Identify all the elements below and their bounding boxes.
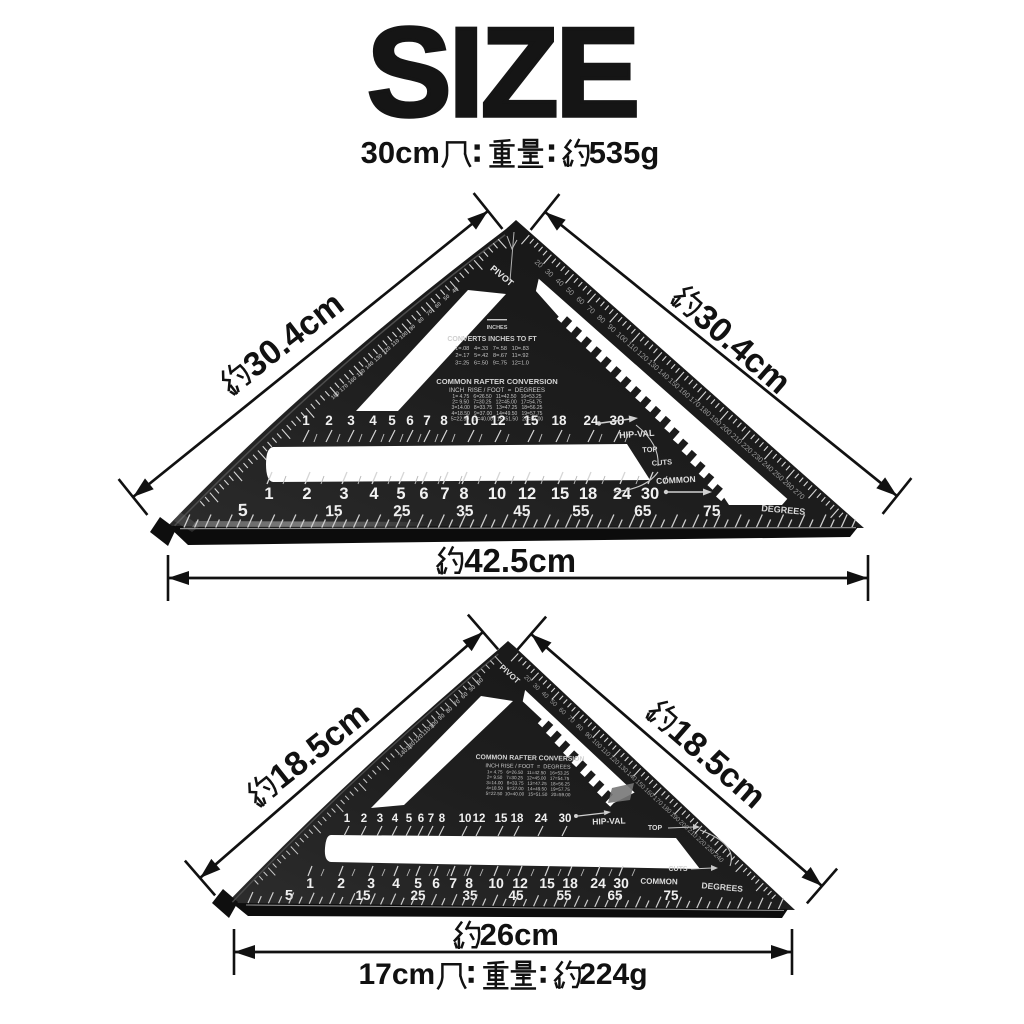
svg-text:2: 2 [302,485,311,503]
svg-text:6: 6 [418,813,424,825]
svg-text:35: 35 [456,503,474,521]
svg-text:12: 12 [490,413,505,428]
svg-text:15: 15 [523,413,539,428]
svg-text:5: 5 [406,813,413,825]
svg-text:3: 3 [339,485,348,503]
svg-text:5: 5 [238,500,249,520]
svg-text:18: 18 [551,413,567,428]
svg-text:224g: 224g [579,958,647,991]
svg-text:26cm: 26cm [480,917,559,952]
svg-text:12: 12 [518,485,536,503]
svg-text:10: 10 [459,813,472,825]
svg-text:4: 4 [369,413,377,428]
svg-text:15: 15 [551,485,569,503]
svg-text:1: 1 [306,875,314,891]
svg-text:10: 10 [488,485,506,503]
svg-text:15: 15 [539,875,555,891]
svg-text:18: 18 [579,485,597,503]
svg-text:8: 8 [440,413,448,428]
svg-text:4: 4 [392,875,400,891]
svg-text:1: 1 [344,813,351,825]
svg-text:17cm: 17cm [359,958,436,991]
svg-text:15: 15 [495,813,508,825]
svg-text:2: 2 [325,413,333,428]
svg-text:55: 55 [572,503,590,521]
svg-text:18: 18 [511,813,524,825]
svg-text:8: 8 [459,485,468,503]
svg-text:2: 2 [337,875,345,891]
svg-text:75: 75 [663,888,679,903]
svg-text:CUTS: CUTS [651,457,672,467]
svg-text:45: 45 [513,503,531,521]
svg-text:INCH RISE / FOOT = DEGREES: INCH RISE / FOOT = DEGREES [449,387,545,394]
svg-text:8: 8 [439,813,446,825]
svg-text:COMMON: COMMON [656,474,696,486]
svg-text:15: 15 [355,888,371,903]
svg-text:2: 2 [361,813,367,825]
svg-text:24: 24 [613,485,632,503]
svg-text:7: 7 [449,875,457,891]
svg-text:30cm: 30cm [361,135,440,170]
svg-text:30: 30 [641,485,659,503]
svg-text:4: 4 [369,485,379,503]
svg-text:24: 24 [590,875,606,891]
svg-text:CONVERTS INCHES TO FT: CONVERTS INCHES TO FT [447,336,537,343]
svg-text:10: 10 [463,413,478,428]
svg-text:1: 1 [264,485,273,503]
svg-text:3=.25 6=.50 9=.75 12=1.0: 3=.25 6=.50 9=.75 12=1.0 [455,360,529,366]
svg-text:30: 30 [559,813,572,825]
svg-text:1=.08 4=.33 7=.58 10=.83: 1=.08 4=.33 7=.58 10=.83 [455,346,529,352]
svg-text:7: 7 [423,413,431,428]
svg-text:42.5cm: 42.5cm [464,542,576,579]
svg-text:7: 7 [428,813,434,825]
svg-text:COMMON RAFTER CONVERSION: COMMON RAFTER CONVERSION [436,377,558,386]
svg-text:6: 6 [432,875,440,891]
svg-text:4: 4 [392,813,399,825]
svg-text:5: 5 [396,485,405,503]
svg-text:6: 6 [406,413,414,428]
svg-text:COMMON: COMMON [640,877,678,887]
svg-text:65: 65 [607,888,623,903]
svg-text:3: 3 [377,813,383,825]
svg-text:3: 3 [347,413,355,428]
svg-text:HIP-VAL: HIP-VAL [592,815,626,826]
svg-text:535g: 535g [589,135,660,170]
svg-text:7: 7 [440,485,449,503]
svg-text:TOP: TOP [648,825,663,832]
svg-text:24: 24 [535,813,548,825]
svg-text:12: 12 [473,813,486,825]
svg-text:INCHES: INCHES [487,325,508,331]
svg-text:65: 65 [634,503,652,521]
svg-text:2=.17 5=.42 8=.67 11=.92: 2=.17 5=.42 8=.67 11=.92 [455,353,528,359]
svg-text:10: 10 [488,875,504,891]
svg-text:25: 25 [393,503,411,521]
svg-text:24: 24 [583,413,599,428]
svg-text:CUTS: CUTS [668,866,687,873]
svg-text:6: 6 [419,485,428,503]
svg-text:1: 1 [302,413,310,428]
svg-text:5: 5 [388,413,396,428]
svg-text:45: 45 [508,888,524,903]
svg-text:15: 15 [325,503,343,521]
